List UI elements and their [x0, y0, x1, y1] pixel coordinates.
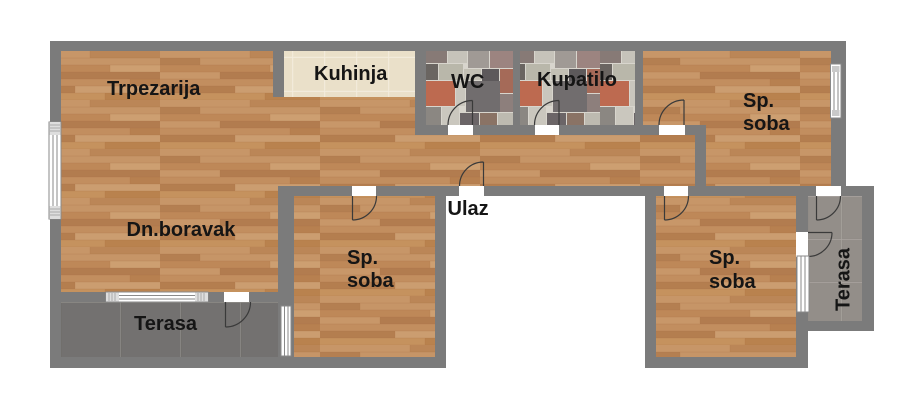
svg-text:WC: WC: [451, 71, 484, 93]
svg-text:Ulaz: Ulaz: [448, 198, 489, 220]
svg-text:soba: soba: [347, 270, 395, 292]
svg-text:Dn.boravak: Dn.boravak: [127, 219, 237, 241]
svg-text:Terasa: Terasa: [833, 247, 855, 311]
svg-text:Sp.: Sp.: [709, 247, 740, 269]
svg-text:Kupatilo: Kupatilo: [537, 69, 617, 91]
svg-text:soba: soba: [743, 113, 791, 135]
svg-text:Sp.: Sp.: [743, 90, 774, 112]
svg-text:soba: soba: [709, 271, 757, 293]
svg-text:Trpezarija: Trpezarija: [107, 78, 201, 100]
svg-text:Terasa: Terasa: [134, 313, 198, 335]
svg-text:Sp.: Sp.: [347, 247, 378, 269]
svg-text:Kuhinja: Kuhinja: [314, 63, 388, 85]
